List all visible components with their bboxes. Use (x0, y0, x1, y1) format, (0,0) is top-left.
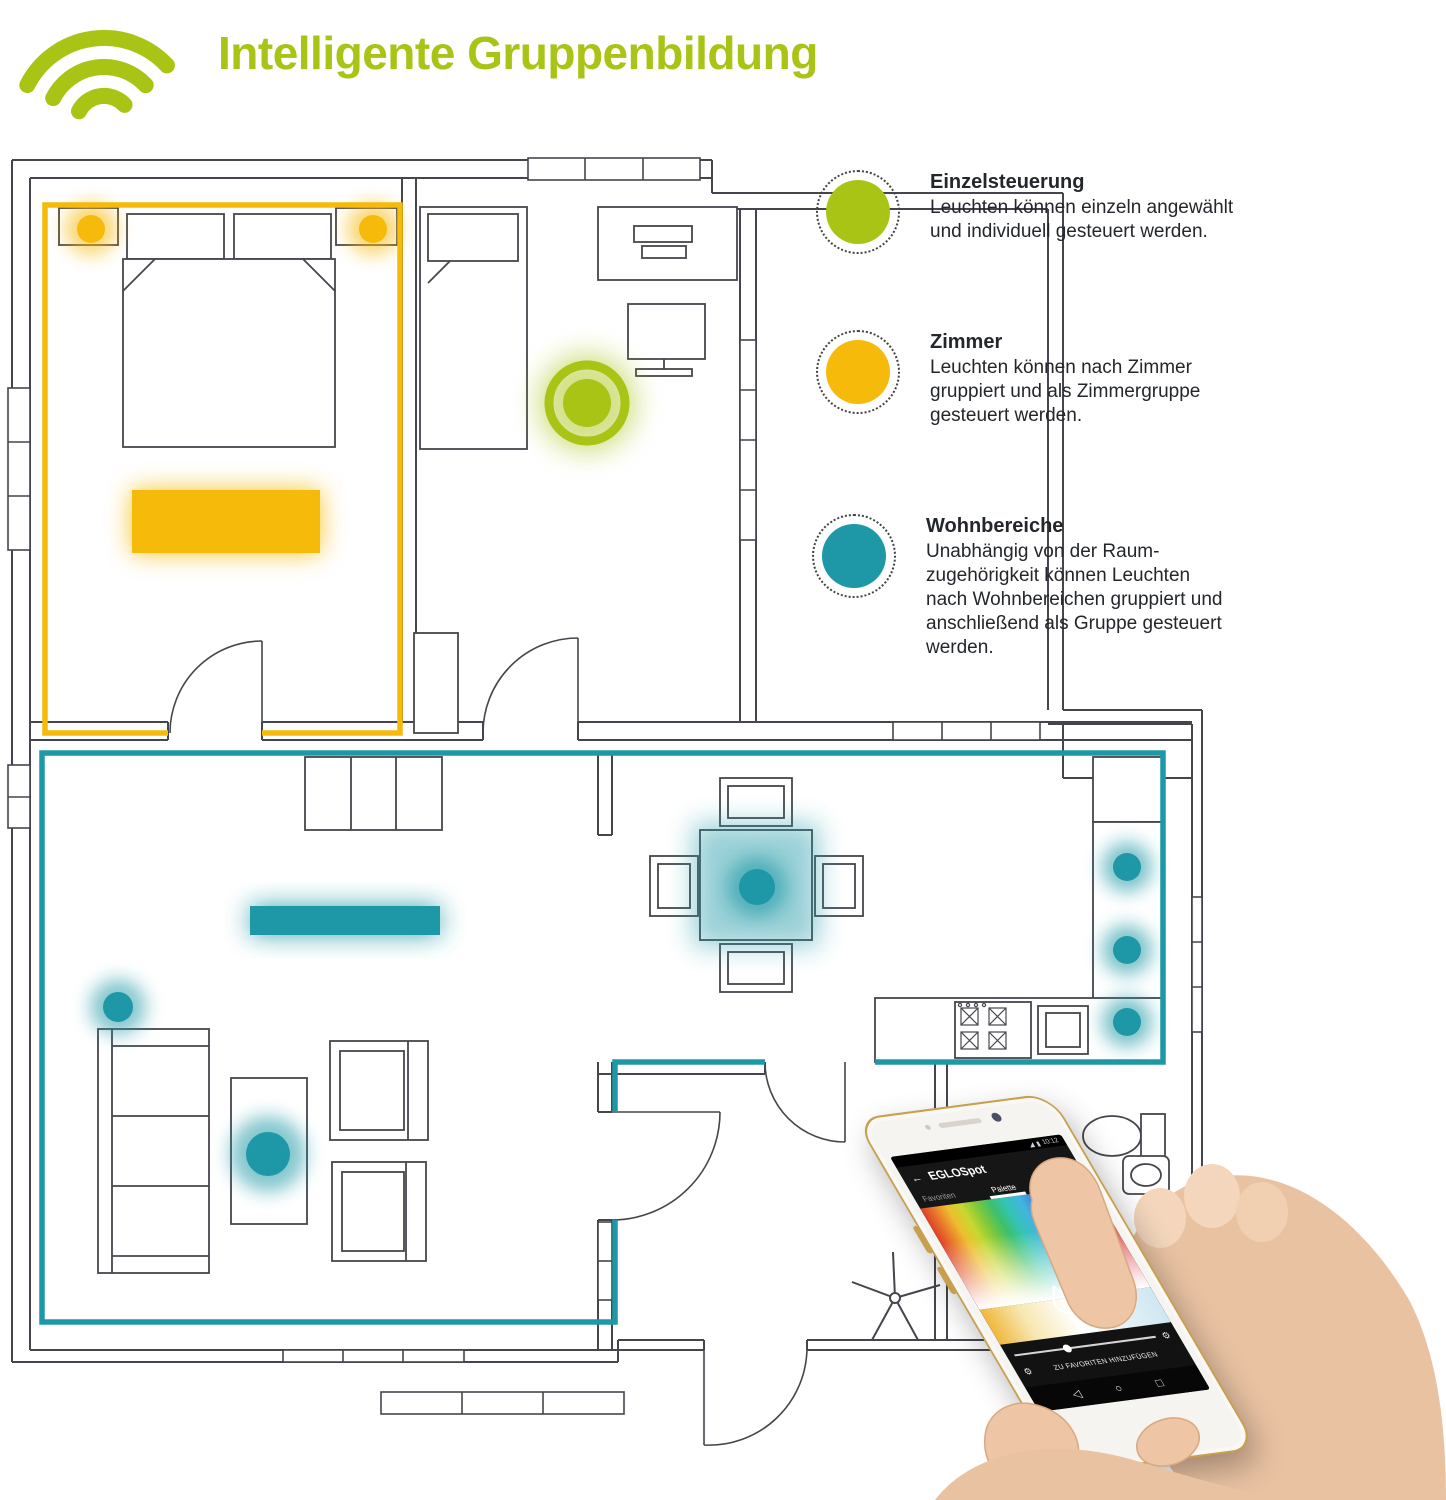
index-finger (1030, 1158, 1136, 1328)
hand-front (0, 0, 1446, 1500)
smart-lighting-diagram: Intelligente Gruppenbildung Einzelsteuer… (0, 0, 1446, 1500)
